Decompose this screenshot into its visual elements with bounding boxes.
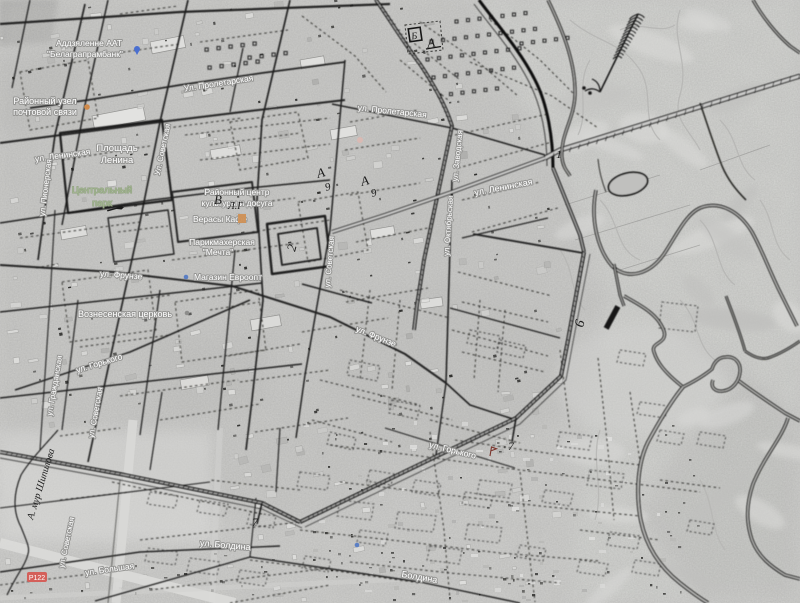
svg-text:1: 1 (556, 147, 562, 161)
svg-text:Л.Г: Л.Г (227, 201, 243, 212)
svg-text:Аддзяленне ААТ: Аддзяленне ААТ (56, 38, 122, 48)
svg-text:Районный узел: Районный узел (13, 96, 76, 106)
svg-text:Магазин Евроопт: Магазин Евроопт (194, 272, 262, 282)
svg-text:7: 7 (508, 439, 515, 453)
svg-text:Вознесенская церковь: Вознесенская церковь (78, 309, 172, 319)
svg-text:Р122: Р122 (29, 575, 45, 582)
svg-text:В: В (214, 192, 222, 207)
svg-text:Парикмахерская: Парикмахерская (189, 237, 255, 247)
svg-text:почтовой связи: почтовой связи (13, 107, 77, 117)
svg-text:7: 7 (252, 515, 259, 529)
svg-text:"Мечта": "Мечта" (203, 247, 234, 257)
svg-text:Центральный: Центральный (72, 185, 132, 196)
svg-text:"Белаграпрамбанк": "Белаграпрамбанк" (47, 49, 123, 59)
svg-text:Ленина: Ленина (101, 155, 134, 166)
svg-text:парк: парк (92, 198, 113, 209)
svg-text:Площадь: Площадь (96, 143, 137, 154)
